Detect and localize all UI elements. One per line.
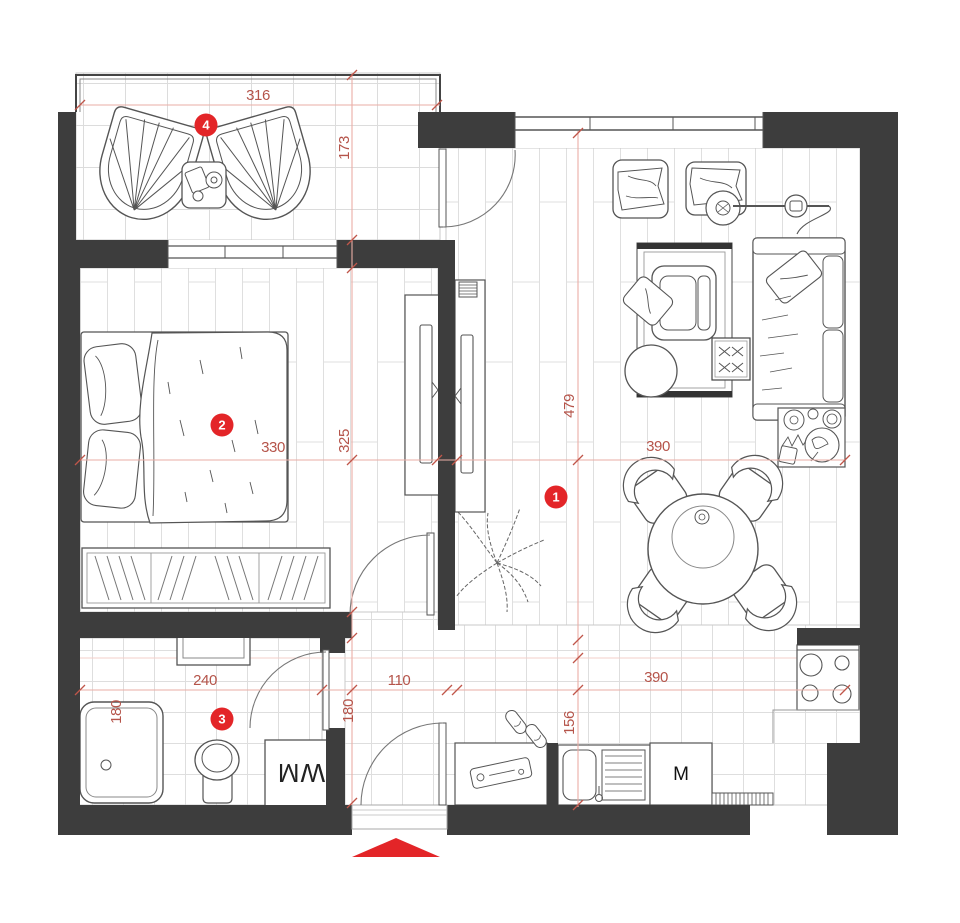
dim-balcony-depth: 173	[336, 136, 353, 160]
sink-basin	[563, 750, 596, 800]
wall	[326, 728, 345, 835]
dim-living-width: 390	[646, 438, 670, 455]
wall	[860, 148, 898, 835]
bedroom-window	[168, 240, 337, 268]
console-table	[778, 408, 845, 467]
dim-hallway-depth: 180	[340, 699, 357, 723]
living-room-window	[515, 112, 763, 148]
dim-hallway-width: 110	[388, 672, 411, 689]
kitchen-radiator	[712, 793, 773, 805]
marker-living-room: 1	[545, 486, 568, 509]
pillow	[82, 428, 142, 509]
marker-balcony: 4	[195, 114, 218, 137]
marker-bedroom: 2	[211, 414, 234, 437]
wall	[337, 240, 455, 268]
dim-living-length: 479	[561, 394, 578, 418]
sink-counter	[558, 745, 650, 805]
wall	[58, 112, 76, 240]
wall	[58, 612, 352, 638]
floor-plan: WM M	[0, 0, 960, 923]
side-table-round	[706, 191, 740, 225]
dim-bedroom-depth: 325	[336, 429, 353, 453]
wall	[418, 112, 515, 148]
marker-bedroom-number: 2	[218, 418, 225, 433]
prep-counter	[455, 743, 547, 805]
dim-kitchen-counter-depth: 156	[561, 711, 578, 735]
living-tv	[461, 335, 473, 473]
balcony-table	[182, 162, 226, 208]
wall	[447, 805, 750, 835]
marker-bathroom: 3	[211, 708, 234, 731]
washing-machine-label: WM	[277, 758, 325, 788]
x-side-table	[712, 338, 750, 380]
marker-living-room-number: 1	[552, 490, 559, 505]
wall	[58, 268, 80, 835]
sofa	[753, 238, 845, 420]
globe-decor	[805, 428, 839, 462]
radiator-icon	[459, 282, 477, 297]
bed	[81, 332, 288, 523]
dim-kitchen-width: 390	[644, 669, 668, 686]
wall	[797, 628, 862, 645]
wall	[827, 743, 862, 835]
living-tv-cabinet	[455, 280, 485, 512]
wall	[438, 264, 455, 630]
oven-label: M	[673, 764, 689, 785]
dim-bathroom-width: 240	[193, 672, 217, 689]
pouf	[625, 345, 677, 397]
floor-plan-drawing: WM M	[0, 0, 960, 923]
bedroom-tv-cabinet	[405, 295, 440, 495]
dim-bathroom-depth: 180	[108, 700, 125, 724]
lounge-chair-left	[613, 160, 668, 218]
wall	[58, 805, 352, 835]
marker-balcony-number: 4	[202, 118, 210, 133]
wardrobe	[82, 548, 330, 608]
marker-bathroom-number: 3	[218, 712, 225, 727]
stove	[797, 645, 859, 710]
bedroom-tv	[420, 325, 432, 463]
wall	[58, 240, 168, 268]
dim-balcony-width: 316	[246, 87, 270, 104]
wall	[763, 112, 898, 148]
oven-unit: M	[650, 743, 712, 805]
entry-threshold	[352, 805, 447, 829]
drainboard	[602, 750, 645, 800]
wall	[547, 743, 558, 805]
entrance-arrow	[352, 838, 440, 857]
dim-bedroom-width: 330	[261, 439, 285, 456]
pillow	[82, 342, 143, 426]
